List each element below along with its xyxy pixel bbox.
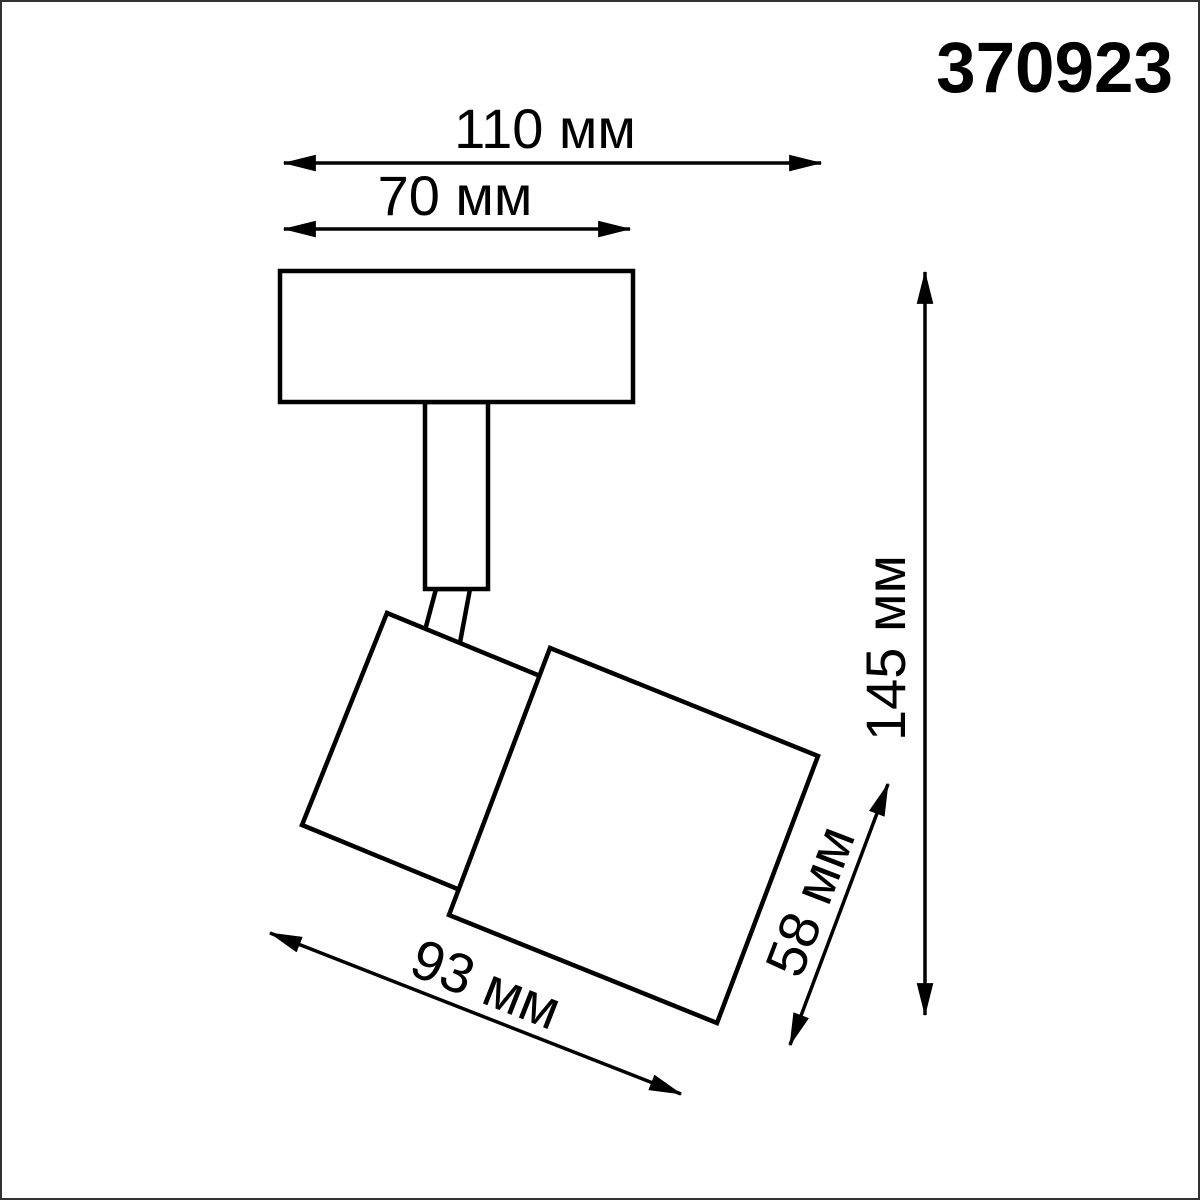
- dimension-label-overall-height: 145 мм: [854, 555, 917, 741]
- stem: [425, 402, 488, 589]
- dimension-label-base-width: 70 мм: [378, 164, 533, 227]
- mounting-base: [280, 271, 633, 402]
- dimension-drawing: 370923 110 мм 70 мм 145 мм 93 мм 58 мм: [0, 0, 1200, 1200]
- article-number: 370923: [936, 29, 1173, 108]
- dimension-label-overall-width: 110 мм: [454, 97, 636, 160]
- drawing-canvas: 370923 110 мм 70 мм 145 мм 93 мм 58 мм: [0, 0, 1200, 1200]
